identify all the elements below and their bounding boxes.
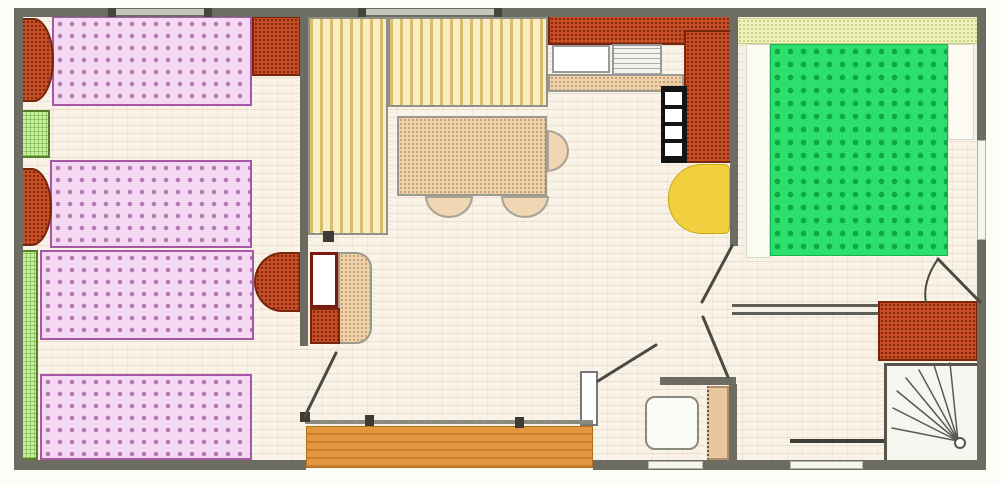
wall-bedroom-bathroom — [732, 304, 878, 315]
stove-burner-2 — [665, 109, 682, 122]
tv-screen — [310, 252, 338, 308]
kitchen-counter-right — [684, 30, 734, 163]
shower-tray — [884, 363, 982, 463]
window-right-wall — [977, 140, 986, 240]
wall-tick-3 — [358, 8, 366, 17]
fridge — [668, 164, 730, 234]
sofa-l-horizontal — [388, 17, 548, 107]
wall-bottom-left — [14, 460, 306, 470]
wall-tick-4 — [494, 8, 502, 17]
window-top-2 — [366, 9, 496, 15]
wall-tick-1 — [108, 8, 116, 17]
window-top-1 — [116, 9, 206, 15]
window-bottom-2 — [790, 461, 863, 469]
stove-burner-4 — [665, 143, 682, 156]
wc-door-panel — [707, 386, 729, 460]
wall-wc-right — [729, 384, 737, 462]
sink-drainer — [612, 44, 662, 76]
wall-partition-left-bedroom — [300, 14, 308, 346]
tv-cabinet-back — [338, 252, 372, 344]
bedside-strip-left — [746, 44, 770, 258]
bay-window-sill — [305, 420, 593, 424]
bed-single-c — [40, 250, 254, 340]
bay-handle-2 — [515, 417, 524, 428]
sofa-end-mark — [323, 231, 334, 242]
floor-plan-canvas — [0, 0, 1000, 486]
tv-cabinet-base — [310, 308, 340, 344]
toilet — [645, 396, 699, 450]
terrace-deck — [306, 426, 593, 468]
stove-burner-1 — [665, 92, 682, 105]
bedside-strip-right — [948, 44, 974, 140]
door-hinge-block — [300, 412, 310, 422]
sink-basin — [552, 45, 610, 73]
wall-wc-top — [660, 377, 736, 385]
wall-kitchen — [730, 14, 738, 246]
bathroom-vanity — [878, 301, 978, 361]
wall-tick-2 — [204, 8, 212, 17]
wall-left — [14, 8, 23, 470]
bed-double-green — [770, 44, 948, 256]
bay-handle-1 — [365, 415, 374, 426]
bed-single-b — [50, 160, 252, 248]
window-bottom-1 — [648, 461, 703, 469]
headboard-shelf — [737, 18, 978, 44]
dining-table — [397, 116, 547, 196]
stove-burner-3 — [665, 126, 682, 139]
bed-single-d — [40, 374, 252, 460]
bay-pier — [580, 371, 598, 426]
sofa-l-vertical — [308, 17, 388, 235]
bed-single-a — [52, 16, 252, 106]
corner-wardrobe — [252, 16, 301, 76]
bathroom-rail — [790, 439, 884, 443]
